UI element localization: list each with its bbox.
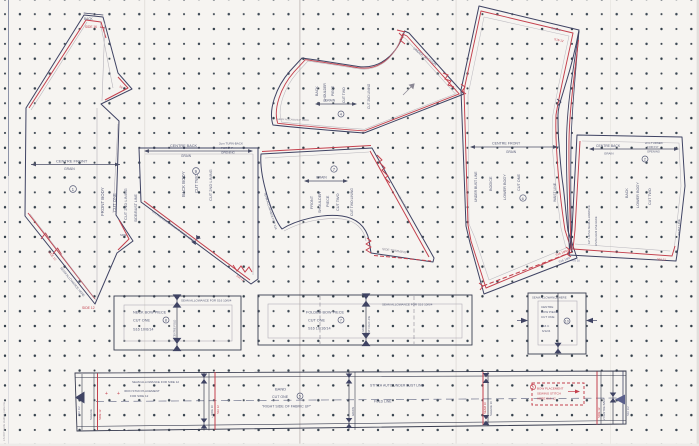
svg-text:S16 C: S16 C	[541, 324, 550, 328]
svg-text:IRON STUD PLACEMENT: IRON STUD PLACEMENT	[124, 389, 160, 393]
svg-text:UNDER BUST LINE: UNDER BUST LINE	[474, 171, 478, 202]
svg-text:SEAM ALLOWANCE HERE: SEAM ALLOWANCE HERE	[532, 296, 567, 300]
svg-text:+ SIDE 10: + SIDE 10	[210, 405, 214, 418]
svg-text:CUT TWO: CUT TWO	[342, 87, 346, 103]
svg-text:CUT TWO: CUT TWO	[648, 188, 652, 205]
svg-text:OPENING: OPENING	[647, 150, 660, 154]
svg-text:LOWER BODY: LOWER BODY	[636, 182, 640, 208]
svg-text:CENTRE: CENTRE	[541, 305, 553, 309]
svg-text:CUT 2ND LINING: CUT 2ND LINING	[208, 169, 213, 201]
svg-text:FOR SIDE 12: FOR SIDE 12	[130, 394, 149, 398]
svg-text:SEAM ALLOWANCE FOR SIDE 12: SEAM ALLOWANCE FOR SIDE 12	[132, 380, 179, 384]
svg-text:CUT ONE: CUT ONE	[517, 174, 521, 191]
svg-text:GRAIN: GRAIN	[181, 154, 192, 158]
svg-text:BACK: BACK	[625, 188, 629, 198]
svg-text:FOLDED BOW PIECE: FOLDED BOW PIECE	[306, 311, 344, 315]
svg-text:PIECE: PIECE	[326, 195, 330, 207]
svg-text:NECK BOW PIECE: NECK BOW PIECE	[133, 311, 167, 315]
svg-text:FRONT: FRONT	[310, 195, 314, 209]
svg-text:SIDE 12: SIDE 12	[98, 409, 102, 420]
svg-text:S16 1/2: S16 1/2	[626, 406, 630, 416]
svg-text:BODICE: BODICE	[489, 176, 493, 191]
svg-text:+: +	[117, 391, 120, 397]
svg-text:S16 10: S16 10	[571, 258, 581, 263]
svg-text:FOLD LINE: FOLD LINE	[374, 400, 392, 404]
svg-text:SHOULDER: SHOULDER	[323, 83, 327, 102]
svg-text:SIDE/BUST LINE: SIDE/BUST LINE	[134, 194, 138, 222]
svg-text:SIDE 16: SIDE 16	[85, 25, 97, 29]
svg-text:GRAIN: GRAIN	[351, 407, 355, 416]
svg-text:SIDE 12: SIDE 12	[597, 407, 601, 418]
svg-text:BOW PLACEMENT: BOW PLACEMENT	[537, 387, 564, 391]
svg-text:2 CENTRE BACK: 2 CENTRE BACK	[602, 398, 606, 420]
svg-text:CENTRE FOLD: CENTRE FOLD	[173, 320, 177, 338]
svg-text:BOW PIECE: BOW PIECE	[541, 310, 558, 314]
svg-text:FRONT BODY: FRONT BODY	[100, 187, 105, 216]
svg-text:CUT ONE: CUT ONE	[541, 315, 554, 319]
svg-text:CUT ONE: CUT ONE	[112, 193, 117, 212]
svg-text:WAIST LINE: WAIST LINE	[677, 219, 681, 236]
svg-text:GRAIN: GRAIN	[64, 167, 75, 171]
svg-text:GRAIN: GRAIN	[361, 324, 365, 332]
svg-text:BACK: BACK	[315, 86, 319, 96]
svg-text:10: 10	[565, 320, 569, 324]
svg-text:CUT TWO: CUT TWO	[336, 193, 340, 211]
svg-text:1ST FOLD LINE: 1ST FOLD LINE	[368, 316, 371, 334]
svg-text:GRAIN: GRAIN	[506, 150, 517, 154]
svg-text:FOR P-P: FOR P-P	[647, 145, 658, 149]
svg-text:SLEEVE: SLEEVE	[89, 409, 93, 420]
svg-text:SEAM ALLOWANCE FOR S16 10/6/4: SEAM ALLOWANCE FOR S16 10/6/4	[382, 303, 433, 307]
svg-text:FOR P-P: FOR P-P	[221, 146, 233, 150]
svg-text:SEWING STITCH: SEWING STITCH	[537, 392, 561, 396]
svg-text:1/2" LINING SEAM ALLOWANCE: 1/2" LINING SEAM ALLOWANCE	[587, 205, 591, 244]
svg-text:S16 10/6/14: S16 10/6/14	[133, 328, 153, 332]
svg-text:SEAM 10: SEAM 10	[483, 402, 487, 414]
svg-text:HERE S16 12: HERE S16 12	[537, 397, 556, 401]
svg-text:S16 10/16/14: S16 10/16/14	[308, 327, 331, 331]
svg-text:S16 12: S16 12	[657, 257, 667, 262]
svg-text:SIDE: SIDE	[120, 233, 127, 237]
svg-text:BACK: BACK	[84, 17, 94, 21]
svg-text:BACK BODY: BACK BODY	[181, 171, 186, 197]
svg-text:GRAIN: GRAIN	[316, 176, 327, 180]
svg-text:CUT ONE: CUT ONE	[308, 319, 325, 323]
svg-text:SLEEVE 10: SLEEVE 10	[489, 401, 493, 416]
svg-text:CUT 2ND LINING: CUT 2ND LINING	[123, 188, 128, 220]
svg-text:SHOULDER: SHOULDER	[318, 192, 322, 213]
svg-text:STITCH AUTO UNDER BUST LINE: STITCH AUTO UNDER BUST LINE	[370, 384, 424, 388]
svg-text:2cm TURN-BACK: 2cm TURN-BACK	[219, 142, 243, 146]
svg-text:GRAIN: GRAIN	[604, 152, 614, 156]
svg-text:BAND: BAND	[275, 387, 286, 392]
svg-text:CUT TWO: CUT TWO	[194, 173, 199, 193]
svg-text:CENTRE FRONT: CENTRE FRONT	[492, 142, 521, 146]
svg-text:6/12/4: 6/12/4	[542, 329, 551, 333]
svg-text:SIDE 12: SIDE 12	[82, 306, 95, 310]
svg-text:CUT TWO LINING: CUT TWO LINING	[350, 188, 354, 216]
svg-text:PIECE: PIECE	[331, 85, 335, 96]
svg-text:SEAM ALLOWANCE FOR S16 10/6/4: SEAM ALLOWANCE FOR S16 10/6/4	[181, 299, 232, 303]
svg-text:CUT ONE: CUT ONE	[272, 395, 289, 399]
svg-text:CUT 2ND LINING: CUT 2ND LINING	[367, 83, 371, 109]
svg-text:WAIST LINE: WAIST LINE	[553, 182, 557, 202]
svg-text:LINING HEM LINE HERE: LINING HEM LINE HERE	[594, 216, 598, 246]
svg-text:CUT ONE: CUT ONE	[133, 319, 150, 323]
svg-text:CENTRE BACK: CENTRE BACK	[596, 144, 621, 148]
svg-text:LOWER BODY: LOWER BODY	[503, 174, 507, 200]
svg-text:CENTRE BACK: CENTRE BACK	[170, 144, 197, 148]
svg-text:LS 007 Dolls clothes patterns: LS 007 Dolls clothes patterns	[2, 401, 6, 441]
svg-text:S16 12: S16 12	[216, 405, 220, 414]
svg-text:+: +	[105, 391, 108, 397]
svg-text:"RIGHT SIDE OF FABRIC UP": "RIGHT SIDE OF FABRIC UP"	[262, 405, 312, 409]
svg-text:CENTRE FRONT: CENTRE FRONT	[56, 159, 88, 164]
svg-text:OPENING: OPENING	[221, 151, 236, 155]
svg-text:5: 5	[532, 386, 534, 390]
svg-text:S16 1/2: S16 1/2	[77, 406, 81, 416]
